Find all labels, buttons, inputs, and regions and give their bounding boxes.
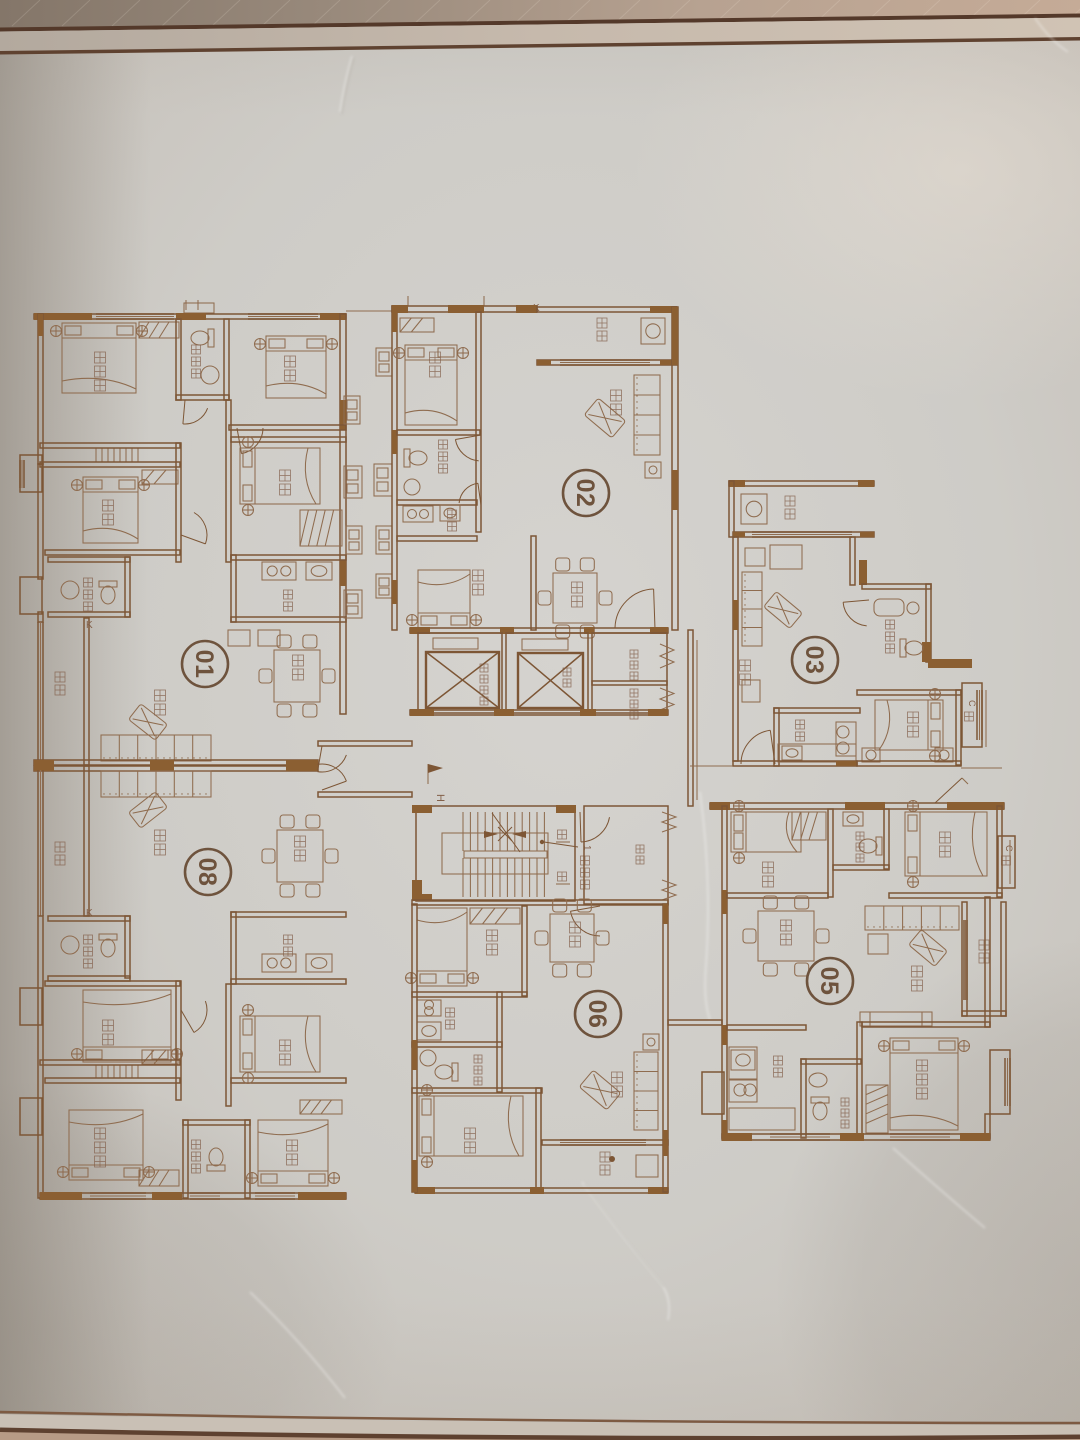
svg-text:C: C — [967, 700, 977, 707]
svg-text:06: 06 — [583, 1000, 611, 1029]
svg-text:03: 03 — [800, 646, 828, 675]
svg-text:H: H — [434, 794, 446, 802]
svg-text:K: K — [86, 620, 93, 631]
svg-text:C: C — [1004, 845, 1014, 852]
svg-text:K: K — [86, 908, 93, 919]
svg-text:02: 02 — [571, 479, 599, 508]
svg-text:01: 01 — [190, 650, 218, 679]
svg-text:1: 1 — [581, 845, 592, 851]
svg-text:08: 08 — [193, 858, 221, 887]
svg-text:05: 05 — [815, 967, 843, 996]
